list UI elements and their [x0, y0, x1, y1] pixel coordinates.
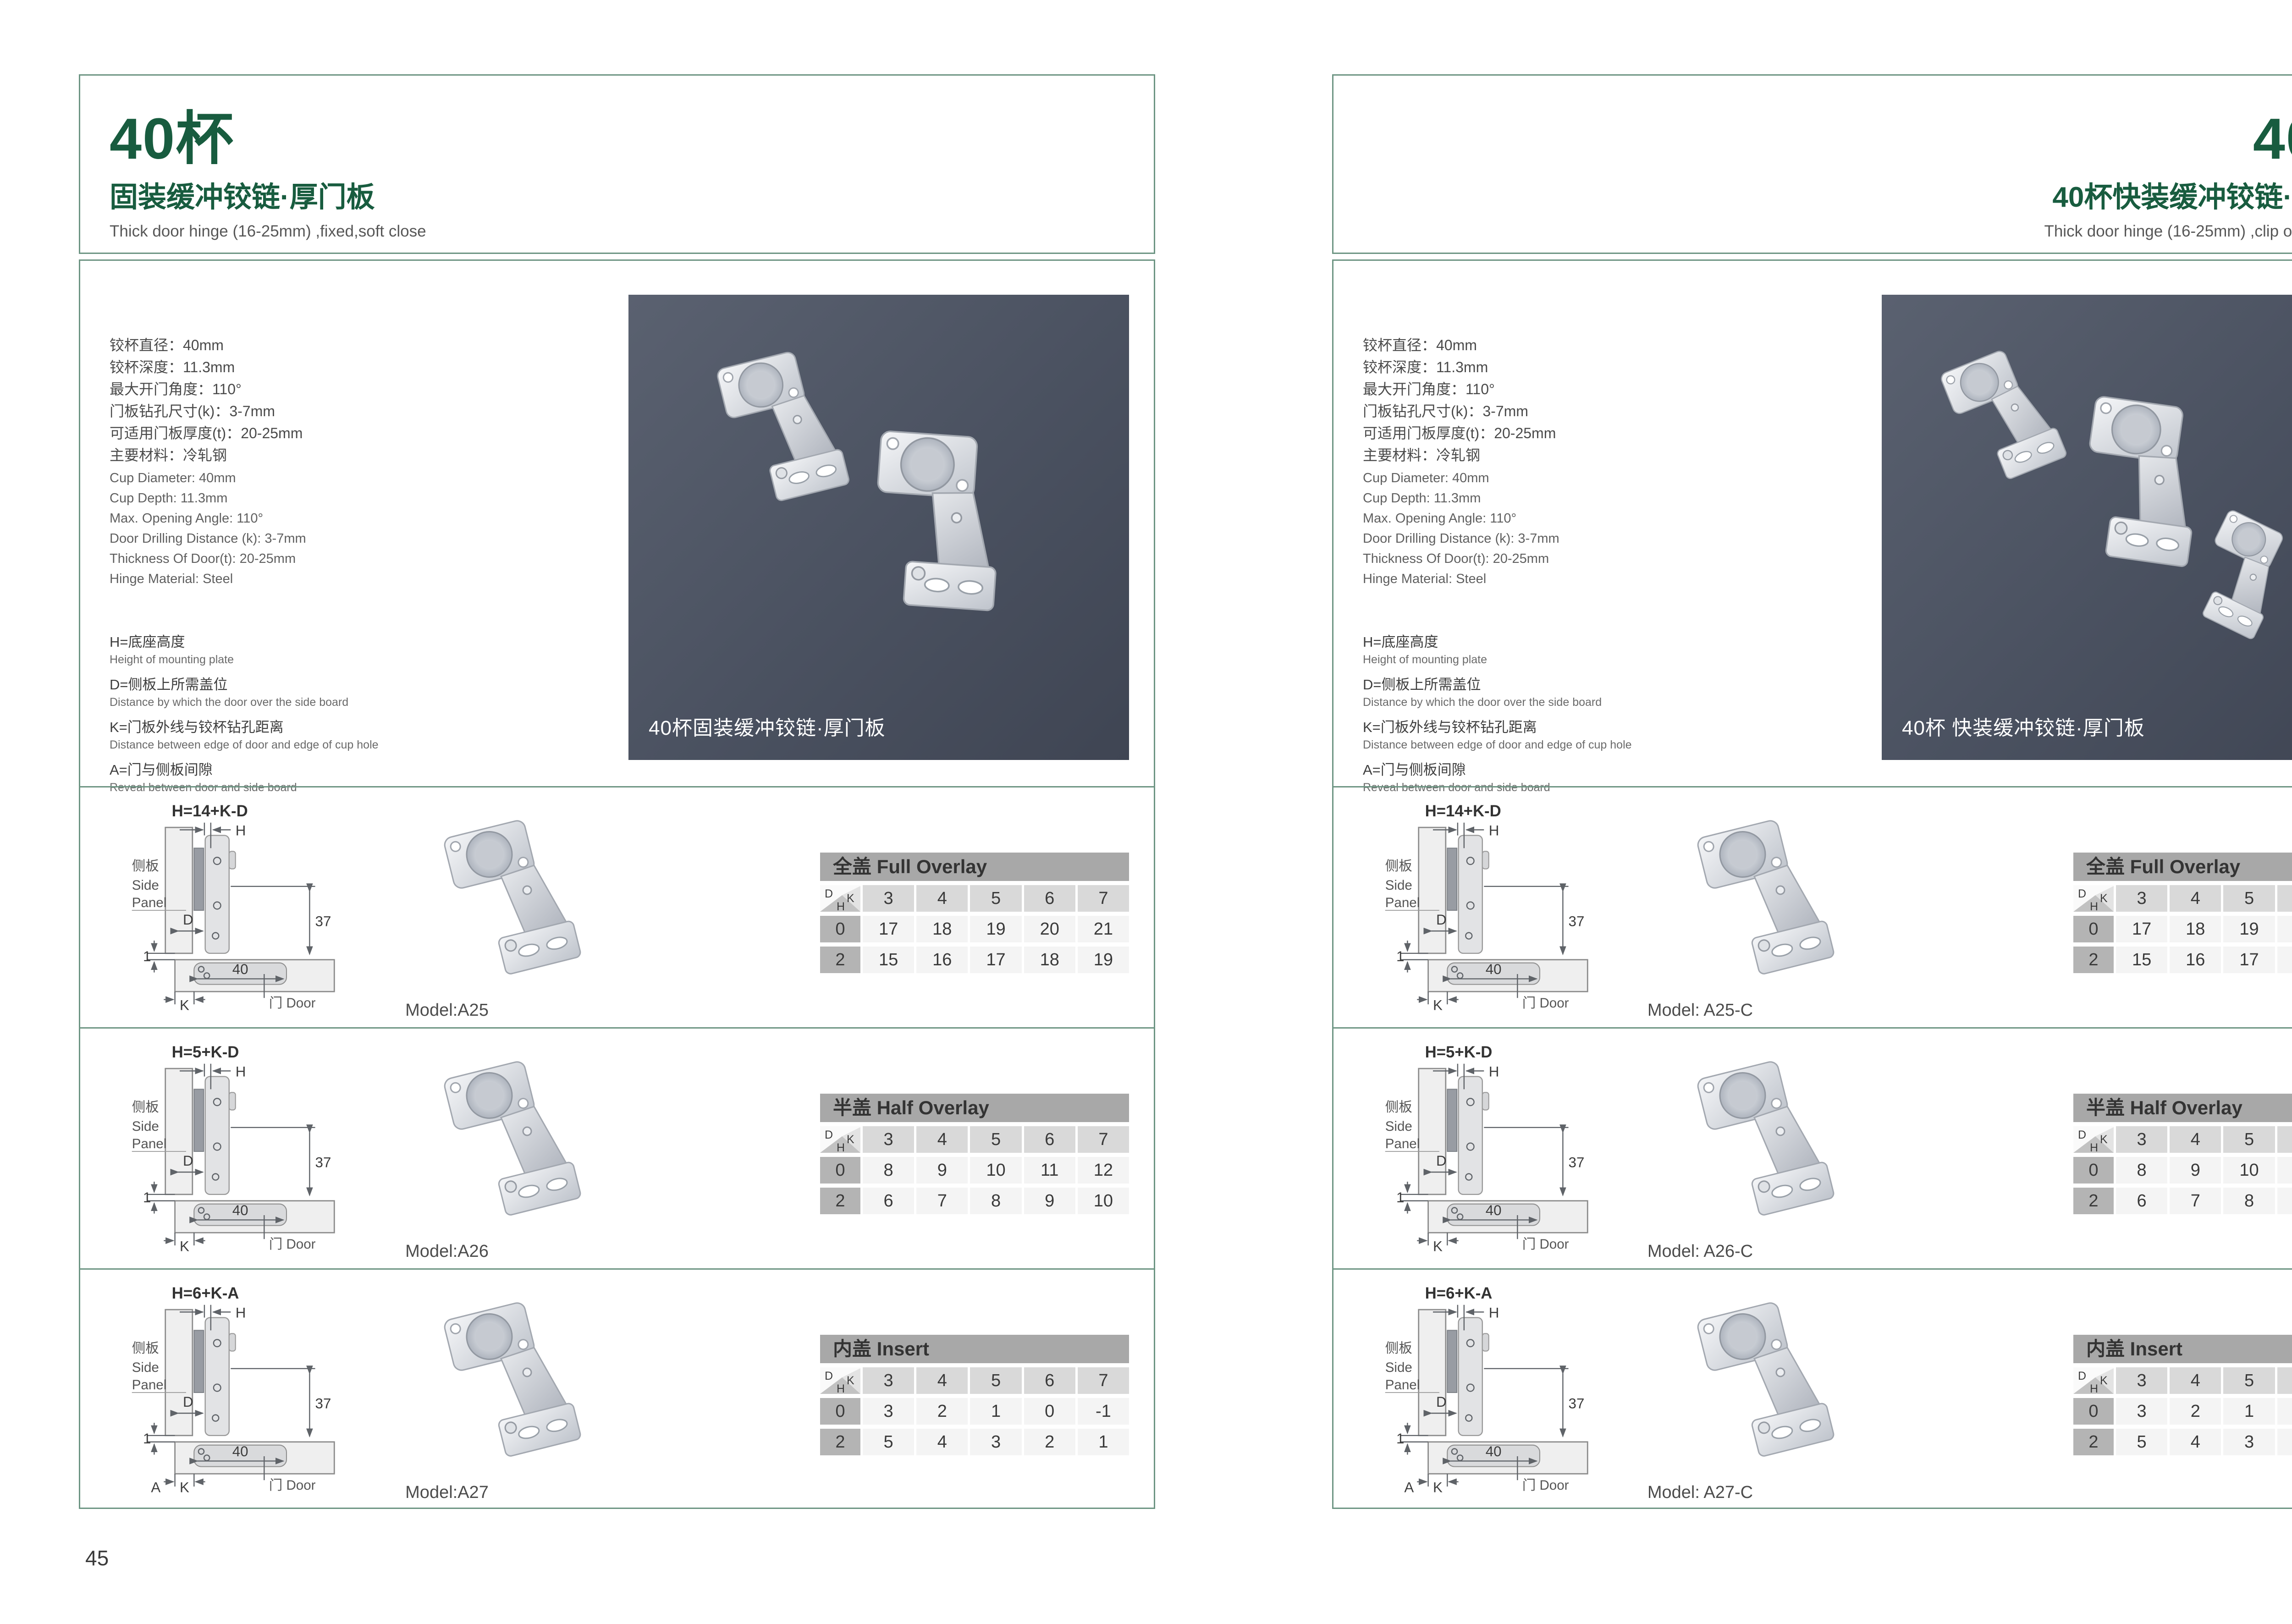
value-cell: 0 — [1024, 1398, 1075, 1425]
svg-text:D: D — [825, 1370, 833, 1382]
spec-line: Cup Diameter: 40mm — [110, 468, 306, 488]
spec-line: Cup Depth: 11.3mm — [1363, 488, 1559, 508]
table-title: 半盖 Half Overlay — [2073, 1094, 2292, 1122]
svg-text:1: 1 — [1396, 1189, 1404, 1206]
value-cell: 16 — [916, 947, 968, 973]
legend-item: H=底座高度 Height of mounting plate — [1363, 630, 1632, 666]
diagram-extra-label: A — [151, 1479, 160, 1493]
config-row-full-overlay: H=14+K-D H D 37 1 40 K 侧板 Side Panel 门 D… — [80, 786, 1154, 1027]
table-corner-cell: D K H — [820, 885, 860, 912]
hinge-illustration — [1691, 1049, 1842, 1224]
k-header-cell: 7 — [1078, 1126, 1129, 1153]
k-header-cell: 6 — [2277, 1126, 2292, 1153]
page-title: 40杯 — [110, 109, 1124, 169]
svg-text:侧板: 侧板 — [1385, 1100, 1412, 1115]
svg-text:门 Door: 门 Door — [269, 1478, 316, 1493]
page-header: 40杯 40杯快装缓冲铰链·厚门板 Thick door hinge (16-2… — [1332, 74, 2292, 254]
svg-text:1: 1 — [143, 1431, 151, 1447]
svg-text:Side: Side — [132, 1360, 159, 1375]
value-row: 89101112 — [863, 1157, 1129, 1184]
value-cell: 15 — [2116, 947, 2167, 973]
spec-line: Thickness Of Door(t): 20-25mm — [110, 549, 306, 569]
svg-text:Panel: Panel — [132, 1136, 167, 1151]
overlay-table-full: 全盖 Full Overlay D K H 34567 — [820, 853, 1129, 973]
svg-text:1: 1 — [143, 1189, 151, 1206]
svg-text:H: H — [837, 1141, 845, 1153]
k-header-cell: 3 — [863, 1367, 914, 1394]
specs-chinese: 铰杯直径：40mm铰杯深度：11.3mm最大开门角度：110°门板钻孔尺寸(k)… — [110, 334, 303, 466]
spec-line: 铰杯直径：40mm — [1363, 334, 1556, 356]
svg-text:D: D — [183, 1153, 193, 1169]
specs-chinese: 铰杯直径：40mm铰杯深度：11.3mm最大开门角度：110°门板钻孔尺寸(k)… — [1363, 334, 1556, 466]
table-title: 全盖 Full Overlay — [2073, 853, 2292, 881]
legend-desc: Distance by which the door over the side… — [110, 696, 379, 709]
hinge-illustration — [1691, 808, 1842, 983]
page-subtitle: 40杯快装缓冲铰链·厚门板 — [1363, 174, 2292, 215]
svg-text:40: 40 — [1486, 961, 1502, 977]
svg-text:K: K — [847, 1133, 854, 1146]
table-title: 内盖 Insert — [2073, 1335, 2292, 1363]
svg-text:Side: Side — [1385, 1119, 1412, 1134]
model-label: Model:A26 — [337, 1242, 557, 1261]
h-row-label: 2 — [820, 1429, 860, 1455]
spec-line: 铰杯深度：11.3mm — [1363, 356, 1556, 378]
hinge-illustration — [1691, 1290, 1842, 1465]
svg-text:门 Door: 门 Door — [1522, 1237, 1569, 1252]
legend-desc: Height of mounting plate — [110, 653, 379, 666]
svg-text:侧板: 侧板 — [132, 1341, 159, 1356]
k-header-cell: 6 — [1024, 1126, 1075, 1153]
diagram-formula: H=6+K-A — [1425, 1286, 1493, 1302]
k-header-cell: 3 — [2116, 1367, 2167, 1394]
spec-line: Door Drilling Distance (k): 3-7mm — [1363, 528, 1559, 549]
svg-text:Panel: Panel — [1385, 895, 1420, 910]
spec-line: Door Drilling Distance (k): 3-7mm — [110, 528, 306, 549]
diagram-formula: H=14+K-D — [1425, 804, 1501, 820]
h-row-label: 0 — [820, 1157, 860, 1184]
k-header-row: 34567 — [863, 885, 1129, 912]
dimension-diagram: H=6+K-A H D 37 1 40 K 侧板 Side Panel 门 Do… — [1379, 1286, 1627, 1493]
k-header-cell: 6 — [1024, 885, 1075, 912]
h-row-label: 2 — [820, 947, 860, 973]
svg-text:H: H — [236, 1305, 246, 1321]
dimension-diagram: H=6+K-A H D 37 1 40 K 侧板 Side Panel 门 Do… — [126, 1286, 374, 1493]
table-corner-cell: D K H — [820, 1367, 860, 1394]
value-cell: 9 — [916, 1157, 968, 1184]
k-header-cell: 6 — [2277, 885, 2292, 912]
spec-line: Cup Diameter: 40mm — [1363, 468, 1559, 488]
k-header-cell: 4 — [916, 885, 968, 912]
k-header-row: 34567 — [863, 1367, 1129, 1394]
svg-text:K: K — [1433, 1238, 1443, 1252]
spec-line: Max. Opening Angle: 110° — [110, 508, 306, 528]
k-header-cell: 4 — [2170, 1126, 2221, 1153]
legend-item: H=底座高度 Height of mounting plate — [110, 630, 379, 666]
value-cell: 11 — [1024, 1157, 1075, 1184]
config-row-half-overlay: H=5+K-D H D 37 1 40 K 侧板 Side Panel 门 Do… — [80, 1027, 1154, 1268]
value-cell: 15 — [863, 947, 914, 973]
svg-text:侧板: 侧板 — [132, 1100, 159, 1115]
value-cell: 20 — [2277, 916, 2292, 942]
value-cell: 3 — [2223, 1429, 2275, 1455]
spec-line: 最大开门角度：110° — [110, 378, 303, 400]
value-cell: 20 — [1024, 916, 1075, 942]
h-row-label: 0 — [2073, 1398, 2114, 1425]
value-row: 89101112 — [2116, 1157, 2292, 1184]
dimension-diagram: H=5+K-D H D 37 1 40 K 侧板 Side Panel 门 Do… — [126, 1045, 374, 1252]
k-header-cell: 3 — [863, 1126, 914, 1153]
value-cell: 18 — [2170, 916, 2221, 942]
k-header-cell: 6 — [1024, 1367, 1075, 1394]
value-cell: 17 — [2223, 947, 2275, 973]
k-header-cell: 5 — [970, 1126, 1021, 1153]
value-cell: 3 — [2116, 1398, 2167, 1425]
value-cell: 1 — [970, 1398, 1021, 1425]
diagram-formula: H=14+K-D — [172, 804, 248, 820]
legend-item: K=门板外线与铰杯钻孔距离 Distance between edge of d… — [1363, 716, 1632, 752]
svg-text:K: K — [847, 892, 854, 905]
page-number: 45 — [85, 1546, 109, 1570]
value-cell: 1 — [1078, 1429, 1129, 1455]
svg-text:K: K — [2100, 1374, 2108, 1387]
h-row-label: 0 — [2073, 916, 2114, 942]
value-cell: 7 — [916, 1188, 968, 1214]
legend-term: D=侧板上所需盖位 — [110, 673, 379, 694]
value-cell: 3 — [863, 1398, 914, 1425]
svg-text:H: H — [1489, 1305, 1499, 1321]
value-cell: 10 — [1078, 1188, 1129, 1214]
photo-caption: 40杯 快装缓冲铰链·厚门板 — [1902, 711, 2145, 741]
svg-text:K: K — [847, 1374, 854, 1387]
svg-text:Panel: Panel — [1385, 1377, 1420, 1393]
legend-desc: Distance between edge of door and edge o… — [110, 738, 379, 752]
h-row-label: 2 — [2073, 1429, 2114, 1455]
k-header-cell: 4 — [2170, 885, 2221, 912]
svg-text:H: H — [2090, 900, 2098, 912]
svg-text:侧板: 侧板 — [1385, 859, 1412, 874]
value-cell: 2 — [1024, 1429, 1075, 1455]
legend-term: K=门板外线与铰杯钻孔距离 — [1363, 716, 1632, 736]
k-header-cell: 4 — [916, 1126, 968, 1153]
svg-text:侧板: 侧板 — [1385, 1341, 1412, 1356]
legend-term: H=底座高度 — [110, 630, 379, 651]
svg-text:K: K — [180, 1238, 189, 1252]
value-cell: 11 — [2277, 1157, 2292, 1184]
page-subtitle-english: Thick door hinge (16-25mm) ,clip on ,sof… — [1363, 222, 2292, 241]
svg-text:40: 40 — [1486, 1443, 1502, 1459]
model-label: Model: A25-C — [1590, 1001, 1810, 1020]
value-row: 54321 — [2116, 1429, 2292, 1455]
table-title: 半盖 Half Overlay — [820, 1094, 1129, 1122]
diagram-extra-label: A — [1404, 1479, 1414, 1493]
value-cell: 6 — [863, 1188, 914, 1214]
table-corner-cell: D K H — [820, 1126, 860, 1153]
value-cell: 9 — [2170, 1157, 2221, 1184]
svg-text:Panel: Panel — [132, 1377, 167, 1393]
value-cell: 19 — [2223, 916, 2275, 942]
svg-text:D: D — [183, 1394, 193, 1410]
specs-english: Cup Diameter: 40mmCup Depth: 11.3mmMax. … — [1363, 468, 1559, 589]
svg-text:Side: Side — [1385, 1360, 1412, 1375]
value-cell: 17 — [2116, 916, 2167, 942]
svg-text:37: 37 — [315, 1396, 331, 1412]
k-header-row: 34567 — [2116, 1126, 2292, 1153]
spec-line: Hinge Material: Steel — [110, 569, 306, 589]
value-cell: 4 — [2170, 1429, 2221, 1455]
product-photo: 40杯固装缓冲铰链·厚门板 — [628, 295, 1129, 760]
overlay-table-half: 半盖 Half Overlay D K H 34567 — [820, 1094, 1129, 1214]
hinge-photo-illustration — [1882, 295, 2292, 760]
hinge-illustration — [438, 1290, 589, 1465]
svg-text:H: H — [2090, 1141, 2098, 1153]
k-header-cell: 6 — [2277, 1367, 2292, 1394]
value-cell: 17 — [970, 947, 1021, 973]
svg-text:D: D — [2078, 1370, 2086, 1382]
dimension-diagram: H=14+K-D H D 37 1 40 K 侧板 Side Panel 门 D… — [126, 804, 374, 1011]
value-cell: 4 — [916, 1429, 968, 1455]
value-row: 3210-1 — [863, 1398, 1129, 1425]
legend-desc: Distance between edge of door and edge o… — [1363, 738, 1632, 752]
value-cell: 2 — [2277, 1429, 2292, 1455]
config-row-full-overlay: H=14+K-D H D 37 1 40 K 侧板 Side Panel 门 D… — [1333, 786, 2292, 1027]
spec-line: 铰杯直径：40mm — [110, 334, 303, 356]
svg-text:37: 37 — [1569, 914, 1585, 930]
value-cell: 6 — [2116, 1188, 2167, 1214]
value-cell: 2 — [2170, 1398, 2221, 1425]
svg-text:K: K — [180, 997, 189, 1011]
hinge-illustration — [438, 1049, 589, 1224]
config-row-half-overlay: H=5+K-D H D 37 1 40 K 侧板 Side Panel 门 Do… — [1333, 1027, 2292, 1268]
value-cell: 10 — [970, 1157, 1021, 1184]
k-header-cell: 5 — [970, 885, 1021, 912]
spec-line: 门板钻孔尺寸(k)：3-7mm — [1363, 400, 1556, 422]
catalog-page-left: 40杯 固装缓冲铰链·厚门板 Thick door hinge (16-25mm… — [79, 0, 1155, 1624]
svg-text:D: D — [825, 887, 833, 900]
diagram-formula: H=5+K-D — [172, 1045, 239, 1061]
legend-desc: Distance by which the door over the side… — [1363, 696, 1632, 709]
legend-term: A=门与侧板间隙 — [110, 758, 379, 779]
legend-item: D=侧板上所需盖位 Distance by which the door ove… — [110, 673, 379, 709]
value-cell: 12 — [1078, 1157, 1129, 1184]
value-row: 1718192021 — [2116, 916, 2292, 942]
model-label: Model:A27 — [337, 1483, 557, 1503]
spec-line: Cup Depth: 11.3mm — [110, 488, 306, 508]
svg-text:H: H — [236, 1064, 246, 1080]
svg-text:40: 40 — [1486, 1202, 1502, 1218]
svg-text:门 Door: 门 Door — [1522, 996, 1569, 1011]
svg-text:H: H — [1489, 823, 1499, 839]
svg-text:D: D — [1436, 1153, 1447, 1169]
k-header-cell: 5 — [2223, 885, 2275, 912]
dimension-legend: H=底座高度 Height of mounting plate D=侧板上所需盖… — [110, 630, 379, 801]
legend-item: K=门板外线与铰杯钻孔距离 Distance between edge of d… — [110, 716, 379, 752]
page-subtitle: 固装缓冲铰链·厚门板 — [110, 174, 1124, 215]
k-header-row: 34567 — [2116, 1367, 2292, 1394]
value-cell: 8 — [2223, 1188, 2275, 1214]
table-corner-cell: D K H — [2073, 1126, 2114, 1153]
svg-text:Panel: Panel — [1385, 1136, 1420, 1151]
value-cell: 3 — [970, 1429, 1021, 1455]
h-row-label: 0 — [2073, 1157, 2114, 1184]
spec-line: 可适用门板厚度(t)：20-25mm — [1363, 422, 1556, 444]
k-header-cell: 5 — [2223, 1367, 2275, 1394]
k-header-cell: 3 — [2116, 1126, 2167, 1153]
product-photo: 40杯 快装缓冲铰链·厚门板 — [1882, 295, 2292, 760]
specs-english: Cup Diameter: 40mmCup Depth: 11.3mmMax. … — [110, 468, 306, 589]
legend-term: K=门板外线与铰杯钻孔距离 — [110, 716, 379, 736]
overlay-table-half: 半盖 Half Overlay D K H 34567 — [2073, 1094, 2292, 1214]
hinge-photo-illustration — [628, 295, 1129, 760]
value-cell: -1 — [1078, 1398, 1129, 1425]
svg-text:H: H — [837, 900, 845, 912]
svg-text:Panel: Panel — [132, 895, 167, 910]
svg-text:K: K — [2100, 1133, 2108, 1146]
svg-text:Side: Side — [132, 1119, 159, 1134]
legend-term: D=侧板上所需盖位 — [1363, 673, 1632, 694]
hinge-illustration — [438, 808, 589, 983]
model-label: Model: A26-C — [1590, 1242, 1810, 1261]
spec-line: 可适用门板厚度(t)：20-25mm — [110, 422, 303, 444]
photo-caption: 40杯固装缓冲铰链·厚门板 — [649, 711, 886, 741]
k-header-cell: 4 — [2170, 1367, 2221, 1394]
spec-line: Hinge Material: Steel — [1363, 569, 1559, 589]
overlay-table-full: 全盖 Full Overlay D K H 34567 — [2073, 853, 2292, 973]
value-cell: 19 — [1078, 947, 1129, 973]
value-cell: 9 — [2277, 1188, 2292, 1214]
svg-text:37: 37 — [1569, 1155, 1585, 1171]
svg-text:37: 37 — [315, 914, 331, 930]
page-content: 铰杯直径：40mm铰杯深度：11.3mm最大开门角度：110°门板钻孔尺寸(k)… — [79, 259, 1155, 1509]
svg-text:K: K — [1433, 1479, 1443, 1493]
svg-text:门 Door: 门 Door — [269, 1237, 316, 1252]
spec-line: Thickness Of Door(t): 20-25mm — [1363, 549, 1559, 569]
legend-term: A=门与侧板间隙 — [1363, 758, 1632, 779]
diagram-formula: H=6+K-A — [172, 1286, 239, 1302]
spec-line: 最大开门角度：110° — [1363, 378, 1556, 400]
model-label: Model: A27-C — [1590, 1483, 1810, 1503]
value-cell: 2 — [916, 1398, 968, 1425]
value-cell: 8 — [2116, 1157, 2167, 1184]
page-content: 铰杯直径：40mm铰杯深度：11.3mm最大开门角度：110°门板钻孔尺寸(k)… — [1332, 259, 2292, 1509]
k-header-cell: 5 — [970, 1367, 1021, 1394]
catalog-page-right: 40杯 40杯快装缓冲铰链·厚门板 Thick door hinge (16-2… — [1332, 0, 2292, 1624]
config-row-insert: H=6+K-A H D 37 1 40 K 侧板 Side Panel 门 Do… — [80, 1268, 1154, 1509]
value-cell: 19 — [970, 916, 1021, 942]
value-cell: 18 — [2277, 947, 2292, 973]
value-cell: 10 — [2223, 1157, 2275, 1184]
svg-text:40: 40 — [232, 1443, 248, 1459]
value-cell: 0 — [2277, 1398, 2292, 1425]
svg-text:40: 40 — [232, 961, 248, 977]
svg-text:K: K — [1433, 997, 1443, 1011]
value-row: 678910 — [2116, 1188, 2292, 1214]
svg-text:1: 1 — [1396, 1431, 1404, 1447]
table-title: 全盖 Full Overlay — [820, 853, 1129, 881]
svg-text:Side: Side — [132, 878, 159, 893]
value-cell: 18 — [916, 916, 968, 942]
value-row: 1516171819 — [2116, 947, 2292, 973]
spec-line: 主要材料：冷轧钢 — [110, 444, 303, 466]
k-header-cell: 3 — [863, 885, 914, 912]
svg-text:K: K — [2100, 892, 2108, 905]
svg-text:D: D — [825, 1129, 833, 1141]
value-row: 3210-1 — [2116, 1398, 2292, 1425]
value-row: 54321 — [863, 1429, 1129, 1455]
svg-text:侧板: 侧板 — [132, 859, 159, 874]
svg-text:D: D — [1436, 912, 1447, 928]
svg-text:D: D — [2078, 887, 2086, 900]
value-cell: 8 — [863, 1157, 914, 1184]
table-corner-cell: D K H — [2073, 885, 2114, 912]
value-cell: 8 — [970, 1188, 1021, 1214]
table-title: 内盖 Insert — [820, 1335, 1129, 1363]
k-header-cell: 4 — [916, 1367, 968, 1394]
svg-text:37: 37 — [1569, 1396, 1585, 1412]
svg-text:H: H — [236, 823, 246, 839]
k-header-cell: 3 — [2116, 885, 2167, 912]
spec-line: 铰杯深度：11.3mm — [110, 356, 303, 378]
svg-text:Side: Side — [1385, 878, 1412, 893]
h-row-label: 0 — [820, 1398, 860, 1425]
value-cell: 5 — [2116, 1429, 2167, 1455]
table-corner-cell: D K H — [2073, 1367, 2114, 1394]
dimension-legend: H=底座高度 Height of mounting plate D=侧板上所需盖… — [1363, 630, 1632, 801]
svg-text:K: K — [180, 1479, 189, 1493]
spec-line: 主要材料：冷轧钢 — [1363, 444, 1556, 466]
svg-text:1: 1 — [143, 948, 151, 964]
svg-text:D: D — [183, 912, 193, 928]
k-header-cell: 5 — [2223, 1126, 2275, 1153]
page-header: 40杯 固装缓冲铰链·厚门板 Thick door hinge (16-25mm… — [79, 74, 1155, 254]
value-cell: 1 — [2223, 1398, 2275, 1425]
svg-text:H: H — [1489, 1064, 1499, 1080]
legend-desc: Height of mounting plate — [1363, 653, 1632, 666]
dimension-diagram: H=5+K-D H D 37 1 40 K 侧板 Side Panel 门 Do… — [1379, 1045, 1627, 1252]
svg-text:H: H — [837, 1382, 845, 1394]
legend-item: D=侧板上所需盖位 Distance by which the door ove… — [1363, 673, 1632, 709]
value-cell: 17 — [863, 916, 914, 942]
overlay-table-insert: 内盖 Insert D K H 34567 — [2073, 1335, 2292, 1455]
config-row-insert: H=6+K-A H D 37 1 40 K 侧板 Side Panel 门 Do… — [1333, 1268, 2292, 1509]
value-cell: 16 — [2170, 947, 2221, 973]
overlay-table-insert: 内盖 Insert D K H 34567 — [820, 1335, 1129, 1455]
svg-text:H: H — [2090, 1382, 2098, 1394]
k-header-row: 34567 — [2116, 885, 2292, 912]
page-title: 40杯 — [1363, 109, 2292, 169]
value-row: 1718192021 — [863, 916, 1129, 942]
svg-text:门 Door: 门 Door — [1522, 1478, 1569, 1493]
svg-text:D: D — [2078, 1129, 2086, 1141]
dimension-diagram: H=14+K-D H D 37 1 40 K 侧板 Side Panel 门 D… — [1379, 804, 1627, 1011]
spec-line: 门板钻孔尺寸(k)：3-7mm — [110, 400, 303, 422]
value-cell: 18 — [1024, 947, 1075, 973]
k-header-row: 34567 — [863, 1126, 1129, 1153]
value-cell: 5 — [863, 1429, 914, 1455]
legend-term: H=底座高度 — [1363, 630, 1632, 651]
value-row: 678910 — [863, 1188, 1129, 1214]
svg-text:40: 40 — [232, 1202, 248, 1218]
svg-text:门 Door: 门 Door — [269, 996, 316, 1011]
k-header-cell: 7 — [1078, 1367, 1129, 1394]
value-row: 1516171819 — [863, 947, 1129, 973]
value-cell: 9 — [1024, 1188, 1075, 1214]
h-row-label: 2 — [820, 1188, 860, 1214]
value-cell: 21 — [1078, 916, 1129, 942]
spec-line: Max. Opening Angle: 110° — [1363, 508, 1559, 528]
diagram-formula: H=5+K-D — [1425, 1045, 1493, 1061]
h-row-label: 0 — [820, 916, 860, 942]
svg-text:1: 1 — [1396, 948, 1404, 964]
